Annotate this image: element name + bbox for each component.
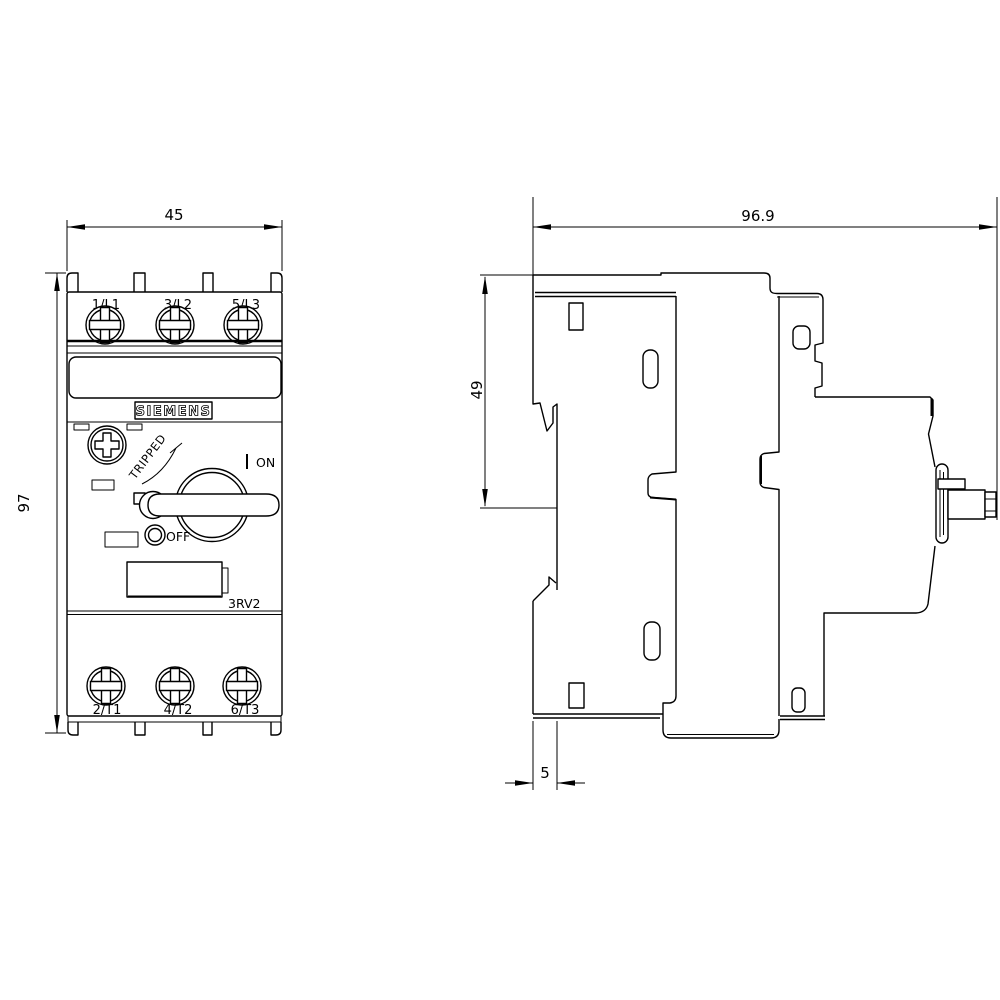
top-tab	[134, 273, 145, 292]
bottom-foot	[135, 722, 145, 735]
top-profile	[533, 273, 777, 294]
bottom-foot	[68, 722, 78, 735]
side-view: 96.9 49 5	[468, 197, 997, 790]
right-top-edge	[777, 294, 823, 398]
vent-slot	[569, 303, 583, 330]
vent-slot	[569, 683, 584, 708]
on-marking: ON	[247, 454, 275, 470]
mid-right-edge	[760, 296, 779, 716]
terminal-labels-bottom: 2/T1 4/T2 6/T3	[93, 703, 260, 718]
terminal-label: 6/T3	[231, 703, 260, 718]
shaft-tip	[985, 492, 996, 517]
siemens-logo: SIEMENS	[135, 402, 212, 420]
terminal-screw-icon	[156, 306, 194, 344]
dimension-upper-height-value: 49	[468, 380, 486, 399]
terminal-screw-icon	[223, 667, 261, 705]
arrow-left-icon	[557, 780, 575, 786]
arrow-right-icon	[515, 780, 533, 786]
vent-slots	[569, 303, 810, 712]
notch-bold-edge	[650, 498, 676, 500]
terminal-screw-icon	[87, 667, 125, 705]
dimension-width: 45	[67, 206, 282, 271]
front-cover-panel	[69, 357, 281, 398]
terminal-label: 4/T2	[164, 703, 193, 718]
shaft-collar	[938, 479, 965, 489]
front-view: 45 97 1/L1 3/L2 5/L3	[15, 206, 282, 735]
terminal-screw-icon	[86, 306, 124, 344]
shaft-flange	[936, 464, 948, 543]
housing-lip	[535, 293, 676, 297]
dimension-rail-offset: 5	[505, 721, 585, 790]
vent-slot	[643, 350, 658, 388]
tripped-tick	[170, 443, 182, 453]
indicator-window	[74, 424, 89, 430]
nose-upper	[815, 397, 935, 467]
shaft-body	[948, 490, 985, 519]
terminal-label: 2/T1	[93, 703, 122, 718]
arrow-down-icon	[54, 715, 60, 733]
separator-line	[67, 611, 282, 615]
terminal-screws-bottom	[87, 667, 261, 705]
dimension-height-value: 97	[15, 493, 33, 512]
arrow-up-icon	[54, 273, 60, 291]
tripped-marking: TRIPPED	[126, 431, 182, 484]
control-area: TRIPPED ON OFF	[74, 424, 279, 611]
side-body-outline	[533, 273, 935, 738]
dimension-height: 97	[15, 273, 66, 733]
indicator-window	[92, 480, 114, 490]
housing-mid-edge	[648, 296, 779, 738]
arrow-right-icon	[264, 224, 282, 230]
vent-slot	[792, 688, 805, 712]
brand-text: SIEMENS	[136, 405, 212, 420]
dimension-upper-height: 49	[468, 275, 557, 508]
vent-slot	[644, 622, 660, 660]
indicator-window	[105, 532, 138, 547]
arrow-left-icon	[533, 224, 551, 230]
right-bottom	[780, 716, 825, 720]
knob-shaft	[936, 464, 996, 543]
rating-nameplate	[127, 562, 228, 597]
top-tab	[67, 273, 78, 292]
tripped-text: TRIPPED	[126, 431, 169, 482]
dimension-depth-value: 96.9	[741, 207, 774, 225]
dimension-width-value: 45	[164, 206, 183, 224]
back-bottom	[533, 714, 663, 718]
rail-clip-upper	[533, 275, 557, 590]
off-text: OFF	[166, 529, 190, 544]
vent-slot	[793, 326, 810, 349]
on-text: ON	[256, 455, 275, 470]
knob-handle[interactable]	[148, 494, 279, 516]
top-tab	[203, 273, 213, 292]
adjustment-dial[interactable]	[88, 426, 126, 464]
model-text: 3RV2	[228, 596, 260, 611]
terminal-screw-icon	[156, 667, 194, 705]
arrow-left-icon	[67, 224, 85, 230]
dimension-rail-offset-value: 5	[540, 764, 550, 782]
arrow-down-icon	[482, 489, 488, 507]
nose-lower	[824, 546, 935, 716]
rail-clip-lower	[533, 577, 556, 601]
arrow-up-icon	[482, 276, 488, 294]
top-tab	[271, 273, 282, 292]
dimension-depth: 96.9	[533, 197, 997, 520]
terminal-screws-top	[86, 306, 262, 344]
bottom-foot	[271, 722, 281, 735]
dimension-drawing: 45 97 1/L1 3/L2 5/L3	[0, 0, 1000, 1000]
terminal-screw-icon	[224, 306, 262, 344]
indicator-window	[127, 424, 142, 430]
drawing-canvas: 45 97 1/L1 3/L2 5/L3	[0, 0, 1000, 1000]
bottom-foot	[203, 722, 212, 735]
arrow-right-icon	[979, 224, 997, 230]
